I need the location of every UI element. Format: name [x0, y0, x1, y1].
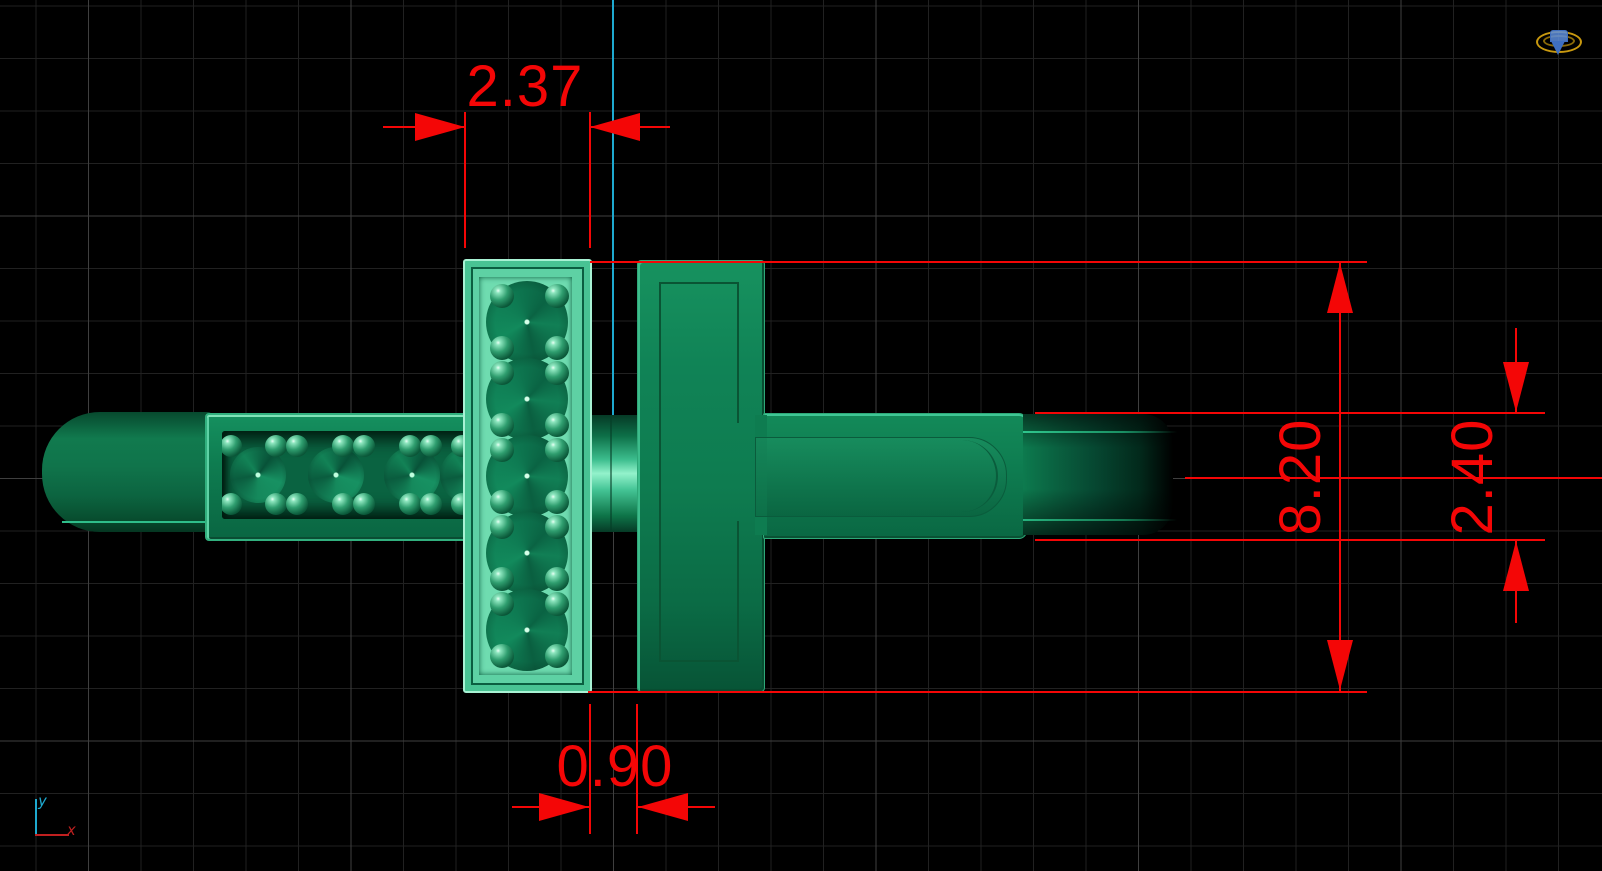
prong-ball — [332, 493, 354, 515]
dimension-extension-line — [589, 704, 591, 834]
ring-band-center-gap[interactable] — [588, 415, 637, 532]
prong-ball — [545, 413, 569, 437]
prong-ball — [265, 493, 287, 515]
prong-ball — [545, 438, 569, 462]
ring-band-right-bottom-edge — [1023, 519, 1177, 521]
prong-ball — [490, 567, 514, 591]
arrowhead-down-icon — [1503, 362, 1529, 412]
arrowhead-down-icon — [1327, 640, 1353, 690]
prong-ball — [490, 336, 514, 360]
gem-pavilion-icon — [1551, 41, 1565, 55]
prong-ball — [399, 435, 421, 457]
prong-ball — [490, 438, 514, 462]
cross-inset-line-lower — [737, 521, 739, 661]
y-axis-label: y — [38, 794, 47, 809]
prong-ball — [545, 515, 569, 539]
prong-ball — [286, 493, 308, 515]
arrowhead-up-icon — [1327, 263, 1353, 313]
arrowhead-left-icon — [590, 113, 640, 141]
prong-ball — [490, 490, 514, 514]
cross-inset-line-left — [659, 282, 661, 662]
cross-inset-line-top — [659, 282, 739, 284]
centerline — [1185, 477, 1602, 479]
arrowhead-up-icon — [1503, 541, 1529, 591]
x-axis-label: x — [67, 823, 76, 838]
arrowhead-right-icon — [415, 113, 465, 141]
cross-bar-right[interactable] — [637, 260, 765, 692]
prong-ball — [420, 435, 442, 457]
arrowhead-right-icon — [539, 793, 589, 821]
prong-ball — [490, 413, 514, 437]
prong-ball — [545, 336, 569, 360]
prong-ball — [490, 361, 514, 385]
pave-channel — [222, 431, 478, 519]
y-axis-arrow — [35, 799, 37, 836]
prong-ball — [490, 644, 514, 668]
dimension-center-gap-text[interactable]: 0.90 — [540, 738, 690, 796]
ring-band-right-top-edge — [1023, 431, 1177, 433]
prong-ball — [420, 493, 442, 515]
prong-ball — [332, 435, 354, 457]
prong-ball — [353, 493, 375, 515]
dimension-setting-width-text[interactable]: 2.37 — [455, 58, 595, 116]
prong-ball — [545, 592, 569, 616]
construction-y-axis-line — [612, 0, 614, 478]
prong-ball — [545, 284, 569, 308]
prong-ball — [222, 493, 242, 515]
prong-ball — [490, 592, 514, 616]
prong-ball — [353, 435, 375, 457]
dimension-band-width-text[interactable]: 2.40 — [1444, 397, 1502, 557]
prong-ball — [399, 493, 421, 515]
prong-ball — [545, 567, 569, 591]
ring-band-left[interactable] — [42, 412, 212, 532]
prong-ball — [545, 644, 569, 668]
gem-bar-field — [479, 277, 572, 675]
prong-ball — [490, 515, 514, 539]
arrowhead-left-icon — [638, 793, 688, 821]
prong-ball — [265, 435, 287, 457]
cross-inset-line-upper — [737, 283, 739, 423]
prong-ball — [545, 490, 569, 514]
dimension-extension-line — [590, 261, 1367, 263]
cross-inset-line-bottom — [659, 660, 739, 662]
prong-ball — [286, 435, 308, 457]
ring-band-left-edge-highlight — [62, 521, 210, 523]
dimension-extension-line — [588, 691, 1367, 693]
cad-viewport[interactable]: 2.37 0.90 8.20 2.40 y x — [0, 0, 1602, 871]
x-axis-arrow — [35, 834, 69, 836]
ring-band-center-seam — [610, 415, 612, 532]
prong-ball — [490, 284, 514, 308]
prong-ball — [545, 361, 569, 385]
